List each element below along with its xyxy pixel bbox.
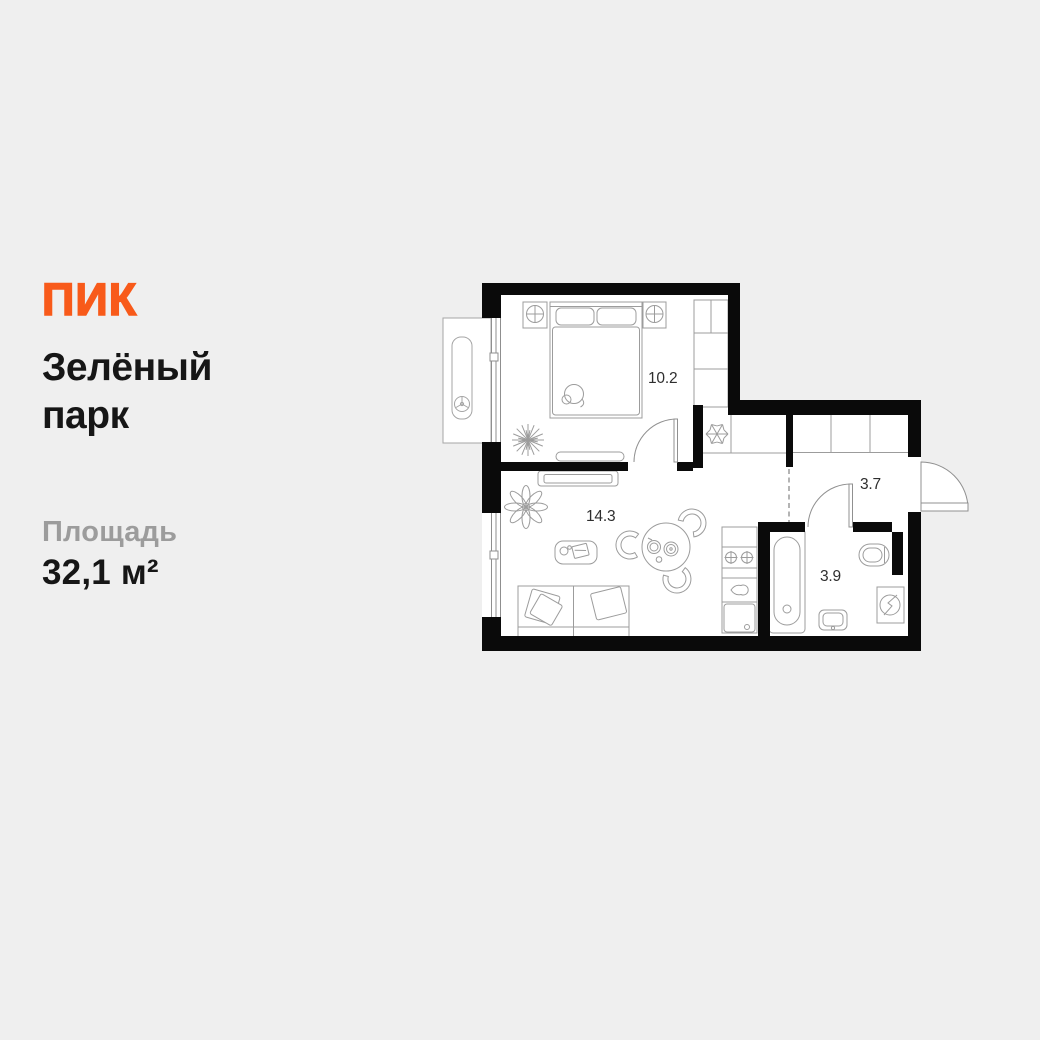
dresser (538, 471, 618, 486)
sofa (518, 586, 629, 637)
bathtub (769, 529, 805, 633)
floor-plan: 10.2 14.3 3.7 3.9 (0, 0, 1040, 1040)
living-room-area-label: 14.3 (586, 508, 615, 525)
coffee-table (555, 541, 597, 564)
plant-icon (512, 424, 544, 456)
apartment-card: ПИК Зелёный парк Площадь 32,1 м² (0, 0, 1040, 1040)
balcony (443, 318, 491, 443)
double-bed (550, 302, 642, 418)
dining-table (642, 523, 690, 571)
nightstand-right (643, 302, 666, 328)
washing-machine-icon (877, 587, 904, 623)
tv-console (556, 452, 624, 461)
entrance-door (921, 462, 968, 511)
hallway-area-label: 3.7 (860, 476, 881, 493)
dishwasher (724, 604, 755, 632)
bedroom-area-label: 10.2 (648, 370, 677, 387)
toilet (859, 544, 889, 566)
bathroom-area-label: 3.9 (820, 568, 841, 585)
wardrobe (694, 300, 728, 407)
nightstand-left (523, 302, 547, 328)
bathroom-sink (819, 610, 847, 630)
